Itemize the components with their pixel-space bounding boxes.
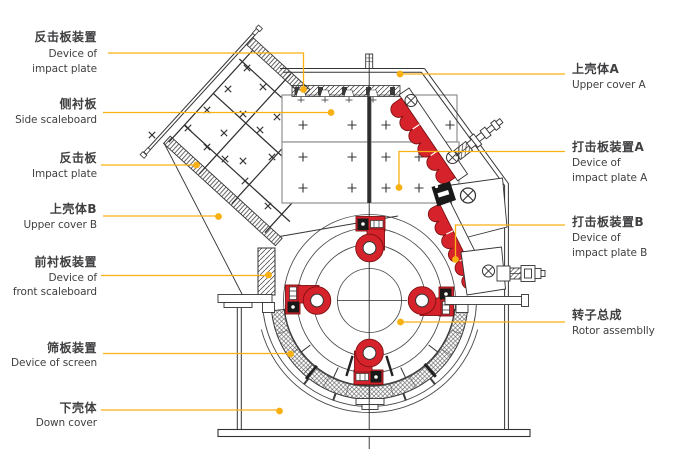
- label-text: Device of screen: [11, 357, 97, 369]
- label-text: 上壳体B: [50, 201, 97, 216]
- label-text: Down cover: [36, 417, 98, 429]
- label-text: 侧衬板: [59, 96, 97, 111]
- label-text: Upper cover B: [23, 219, 97, 231]
- label-text: 上壳体A: [572, 61, 620, 76]
- left-mount-flange: [218, 295, 272, 303]
- label-text: Device of: [49, 272, 98, 284]
- label-text: 前衬板装置: [34, 254, 97, 269]
- label-text: 打击板装置A: [572, 139, 645, 154]
- label-text: Rotor assemblly: [572, 325, 655, 337]
- base-frame: [218, 430, 530, 437]
- right-shaft-flange: [445, 297, 522, 305]
- label-text: impact plate A: [572, 172, 648, 184]
- label-text: 反击板装置: [34, 29, 97, 44]
- hammer-bottom: [354, 339, 383, 384]
- label-text: Side scaleboard: [15, 114, 97, 126]
- label-text: Impact plate: [32, 168, 97, 180]
- label-text: impact plate: [32, 63, 97, 75]
- label-text: 转子总成: [572, 307, 622, 322]
- label-text: 下壳体: [59, 400, 97, 415]
- label-text: 反击板: [59, 150, 97, 165]
- crusher-structure-diagram: 反击板装置 Device of impact plate 侧衬板 Side sc…: [0, 0, 674, 458]
- hammer-top: [356, 217, 385, 262]
- label-text: Device of: [49, 48, 98, 60]
- label-text: front scaleboard: [13, 286, 97, 298]
- label-text: Upper cover A: [572, 79, 646, 91]
- screen-bottom-bracket: [356, 399, 384, 405]
- label-text: 筛板装置: [47, 340, 97, 355]
- label-text: Device of: [572, 157, 621, 169]
- screen-end-cap-left: [263, 303, 275, 313]
- front-scaleboard: [258, 248, 275, 295]
- hammer-left: [286, 285, 331, 314]
- label-text: Device of: [572, 232, 621, 244]
- label-text: impact plate B: [572, 247, 647, 259]
- diagram-canvas: 反击板装置 Device of impact plate 侧衬板 Side sc…: [0, 0, 674, 458]
- label-text: 打击板装置B: [572, 214, 644, 229]
